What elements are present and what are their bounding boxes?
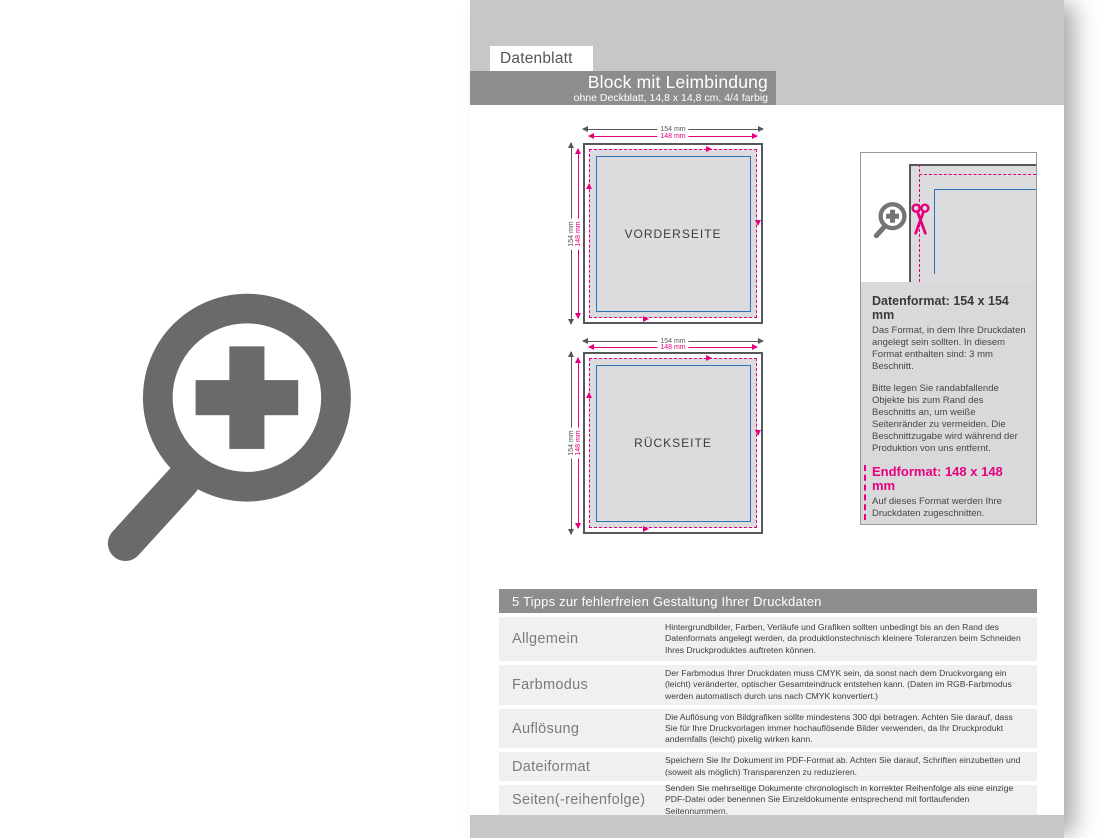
back-height-inner-measure: 148 mm bbox=[578, 358, 579, 528]
datenblatt-tab: Datenblatt bbox=[490, 46, 593, 71]
tip-row-label: Allgemein bbox=[499, 617, 665, 661]
cut-marker-icon bbox=[586, 389, 592, 398]
zoom-plus-icon bbox=[872, 201, 908, 239]
front-height-inner-measure: 148 mm bbox=[578, 149, 579, 318]
table-row: Auflösung Die Auflösung von Bildgrafiken… bbox=[499, 709, 1037, 748]
tip-row-label: Seiten(-reihenfolge) bbox=[499, 785, 665, 815]
detail-safety-line-vertical bbox=[934, 189, 935, 274]
back-height-outer-measure: 154 mm bbox=[571, 352, 572, 534]
back-cut-line: RÜCKSEITE bbox=[589, 358, 757, 528]
front-cut-line: VORDERSEITE bbox=[589, 149, 757, 318]
page-subtitle: ohne Deckblatt, 14,8 x 14,8 cm, 4/4 farb… bbox=[470, 92, 768, 104]
product-title-banner: Block mit Leimbindung ohne Deckblatt, 14… bbox=[470, 71, 776, 105]
datenblatt-tab-label: Datenblatt bbox=[500, 50, 573, 68]
detail-cut-line-horizontal bbox=[919, 174, 1036, 175]
table-row: Dateiformat Speichern Sie Ihr Dokument i… bbox=[499, 752, 1037, 781]
format-info-text: Datenformat: 154 x 154 mm Das Format, in… bbox=[861, 282, 1036, 524]
front-height-outer-measure: 154 mm bbox=[571, 143, 572, 324]
front-width-outer-measure: 154 mm bbox=[583, 129, 763, 130]
datenformat-heading: Datenformat: 154 x 154 mm bbox=[872, 294, 1026, 322]
bottom-gray-band bbox=[470, 815, 1064, 838]
back-safety-line: RÜCKSEITE bbox=[596, 365, 751, 522]
endformat-paragraph: Auf dieses Format werden Ihre Druckdaten… bbox=[872, 496, 1026, 520]
cut-marker-icon bbox=[586, 180, 592, 189]
front-width-inner-measure: 148 mm bbox=[589, 136, 757, 137]
front-side-label: VORDERSEITE bbox=[624, 227, 721, 241]
scissors-icon bbox=[910, 201, 931, 239]
cut-marker-icon bbox=[706, 146, 715, 152]
datasheet-page: Datenblatt Block mit Leimbindung ohne De… bbox=[470, 0, 1064, 838]
zoom-plus-icon bbox=[93, 284, 363, 568]
tip-row-text: Die Auflösung von Bildgrafiken sollte mi… bbox=[665, 709, 1037, 748]
front-safety-line: VORDERSEITE bbox=[596, 156, 751, 312]
cut-marker-icon bbox=[755, 220, 761, 229]
tip-row-label: Auflösung bbox=[499, 709, 665, 748]
cut-marker-icon bbox=[706, 355, 715, 361]
cut-marker-icon bbox=[755, 430, 761, 439]
cut-marker-icon bbox=[643, 316, 652, 322]
page-title: Block mit Leimbindung bbox=[470, 73, 768, 92]
tips-table: 5 Tipps zur fehlerfreien Gestaltung Ihre… bbox=[499, 589, 1037, 815]
format-info-box: Datenformat: 154 x 154 mm Das Format, in… bbox=[860, 152, 1037, 525]
front-datenformat-frame: VORDERSEITE bbox=[583, 143, 763, 324]
tip-row-text: Senden Sie mehrseitige Dokumente chronol… bbox=[665, 785, 1037, 815]
back-width-inner-measure: 148 mm bbox=[589, 347, 757, 348]
table-row: Farbmodus Der Farbmodus Ihrer Druckdaten… bbox=[499, 665, 1037, 705]
front-height-inner-label: 148 mm bbox=[575, 218, 583, 249]
cut-marker-icon bbox=[643, 526, 652, 532]
back-width-outer-measure: 154 mm bbox=[583, 341, 763, 342]
tip-row-text: Hintergrundbilder, Farben, Verläufe und … bbox=[665, 617, 1037, 661]
detail-safety-line-horizontal bbox=[934, 189, 1036, 190]
tip-row-label: Farbmodus bbox=[499, 665, 665, 705]
tips-title: 5 Tipps zur fehlerfreien Gestaltung Ihre… bbox=[512, 594, 822, 609]
tip-row-text: Speichern Sie Ihr Dokument im PDF-Format… bbox=[665, 752, 1037, 781]
table-row: Seiten(-reihenfolge) Senden Sie mehrseit… bbox=[499, 785, 1037, 815]
endformat-section: Endformat: 148 x 148 mm Auf dieses Forma… bbox=[864, 465, 1026, 520]
tips-table-header: 5 Tipps zur fehlerfreien Gestaltung Ihre… bbox=[499, 589, 1037, 613]
back-width-inner-label: 148 mm bbox=[657, 344, 688, 352]
datenformat-paragraph-1: Das Format, in dem Ihre Druckdaten angel… bbox=[872, 325, 1026, 373]
tip-row-label: Dateiformat bbox=[499, 752, 665, 781]
datenformat-paragraph-2: Bitte legen Sie randabfallende Objekte b… bbox=[872, 383, 1026, 455]
tip-row-text: Der Farbmodus Ihrer Druckdaten muss CMYK… bbox=[665, 665, 1037, 705]
front-width-inner-label: 148 mm bbox=[657, 133, 688, 141]
endformat-heading: Endformat: 148 x 148 mm bbox=[872, 465, 1026, 493]
back-datenformat-frame: RÜCKSEITE bbox=[583, 352, 763, 534]
table-row: Allgemein Hintergrundbilder, Farben, Ver… bbox=[499, 617, 1037, 661]
back-height-inner-label: 148 mm bbox=[575, 427, 583, 458]
back-side-label: RÜCKSEITE bbox=[634, 436, 712, 450]
